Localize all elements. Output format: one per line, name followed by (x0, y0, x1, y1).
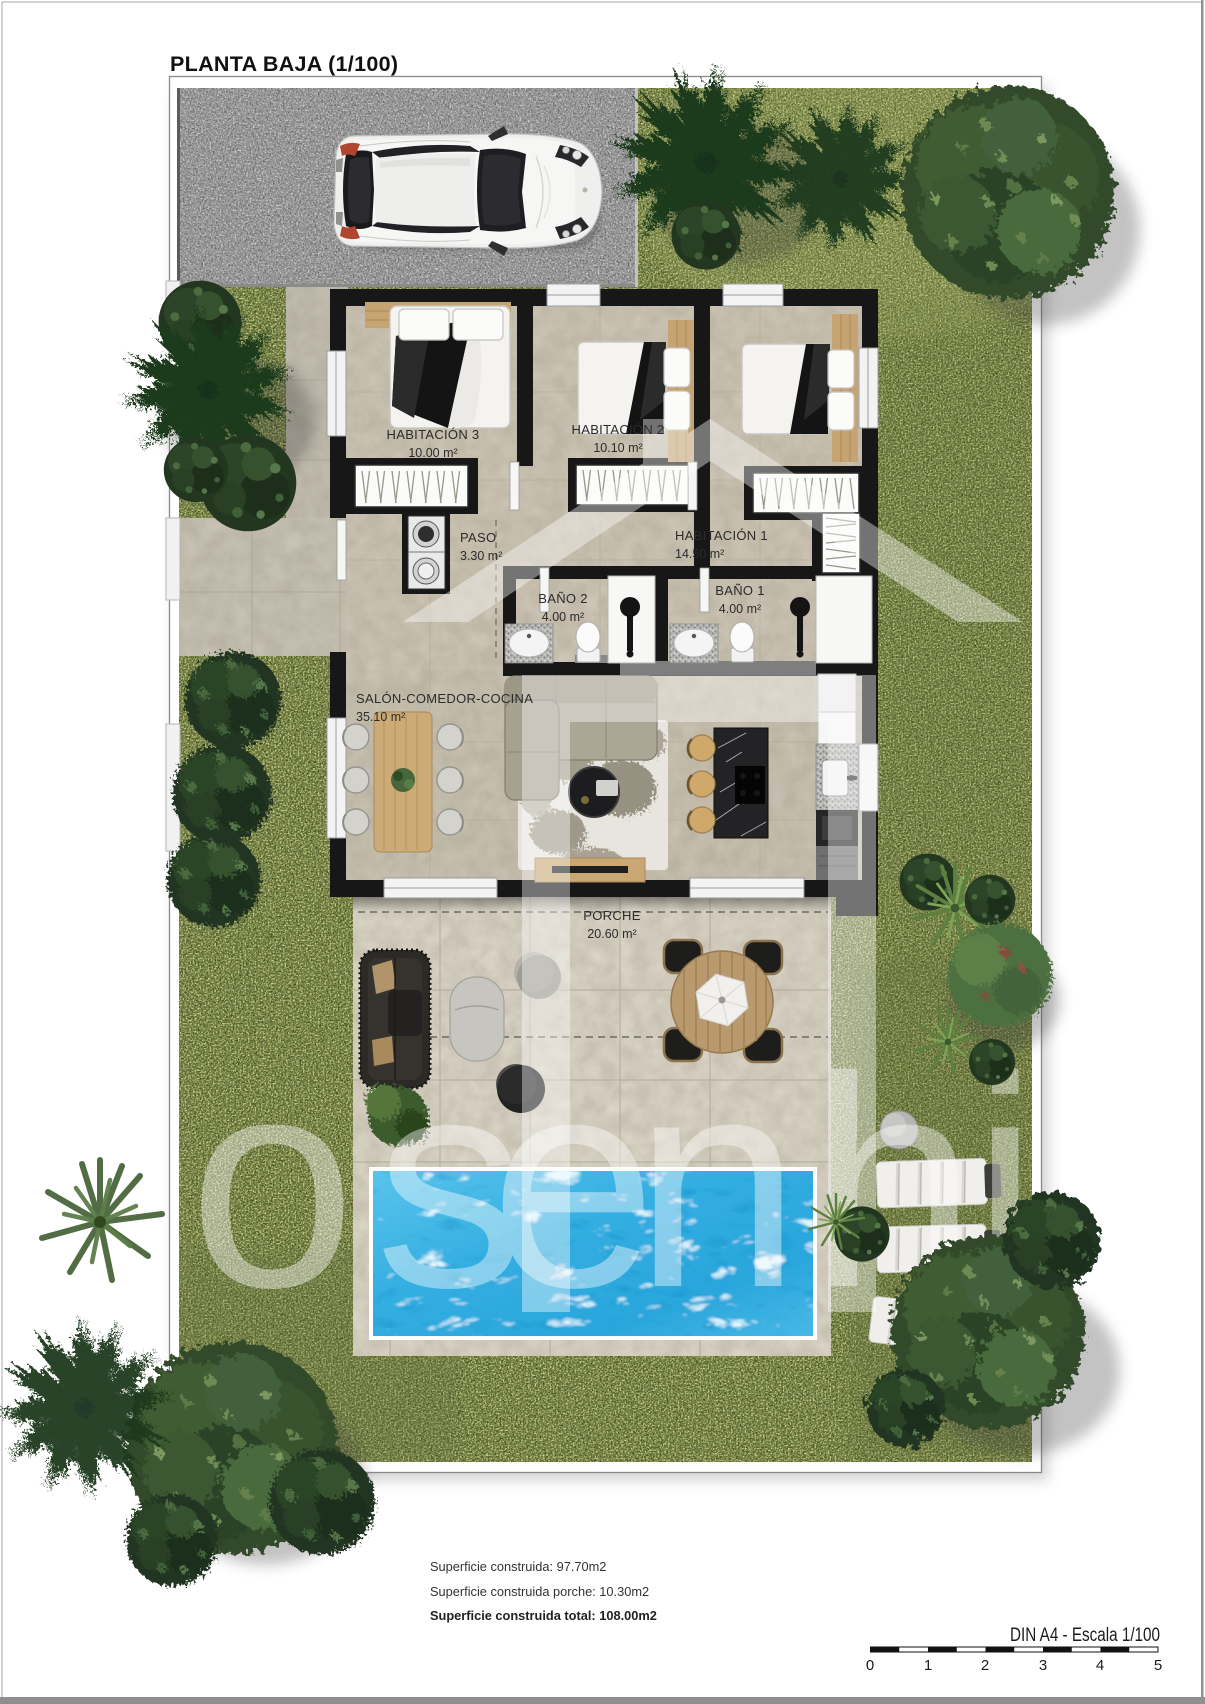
svg-text:o: o (189, 1014, 356, 1350)
svg-text:3: 3 (1039, 1657, 1047, 1674)
svg-text:1: 1 (924, 1657, 932, 1674)
svg-text:HABITACIÓN 3: HABITACIÓN 3 (387, 427, 480, 442)
svg-text:HABITACIÓN 1: HABITACIÓN 1 (675, 528, 768, 543)
svg-text:20.60 m²: 20.60 m² (587, 927, 636, 941)
svg-text:2: 2 (981, 1657, 989, 1674)
svg-text:PASO: PASO (460, 530, 496, 545)
svg-text:10.00 m²: 10.00 m² (408, 446, 457, 460)
svg-text:14.50 m²: 14.50 m² (675, 547, 724, 561)
svg-text:PLANTA BAJA (1/100): PLANTA BAJA (1/100) (170, 52, 398, 76)
svg-text:PORCHE: PORCHE (583, 908, 640, 923)
svg-text:3.30 m²: 3.30 m² (460, 549, 502, 563)
svg-text:4.00 m²: 4.00 m² (719, 602, 761, 616)
svg-text:n: n (634, 1014, 801, 1350)
svg-text:5: 5 (1154, 1657, 1162, 1674)
svg-text:Superficie construida total: 1: Superficie construida total: 108.00m2 (430, 1608, 657, 1623)
svg-text:DIN A4 - Escala 1/100: DIN A4 - Escala 1/100 (1010, 1625, 1160, 1646)
svg-text:Superficie construida: 97.70m2: Superficie construida: 97.70m2 (430, 1559, 606, 1574)
svg-text:BAÑO 2: BAÑO 2 (538, 591, 587, 606)
svg-text:Superficie construida porche:: Superficie construida porche: 10.30m2 (430, 1584, 649, 1599)
svg-text:HABITACIÓN 2: HABITACIÓN 2 (572, 422, 665, 437)
svg-text:4: 4 (1096, 1657, 1104, 1674)
svg-text:SALÓN-COMEDOR-COCINA: SALÓN-COMEDOR-COCINA (356, 691, 533, 706)
svg-text:e: e (490, 1014, 657, 1350)
svg-text:35.10 m²: 35.10 m² (356, 710, 405, 724)
svg-text:0: 0 (866, 1657, 874, 1674)
svg-text:4.00 m²: 4.00 m² (542, 610, 584, 624)
svg-text:BAÑO 1: BAÑO 1 (715, 583, 764, 598)
svg-text:10.10 m²: 10.10 m² (593, 441, 642, 455)
